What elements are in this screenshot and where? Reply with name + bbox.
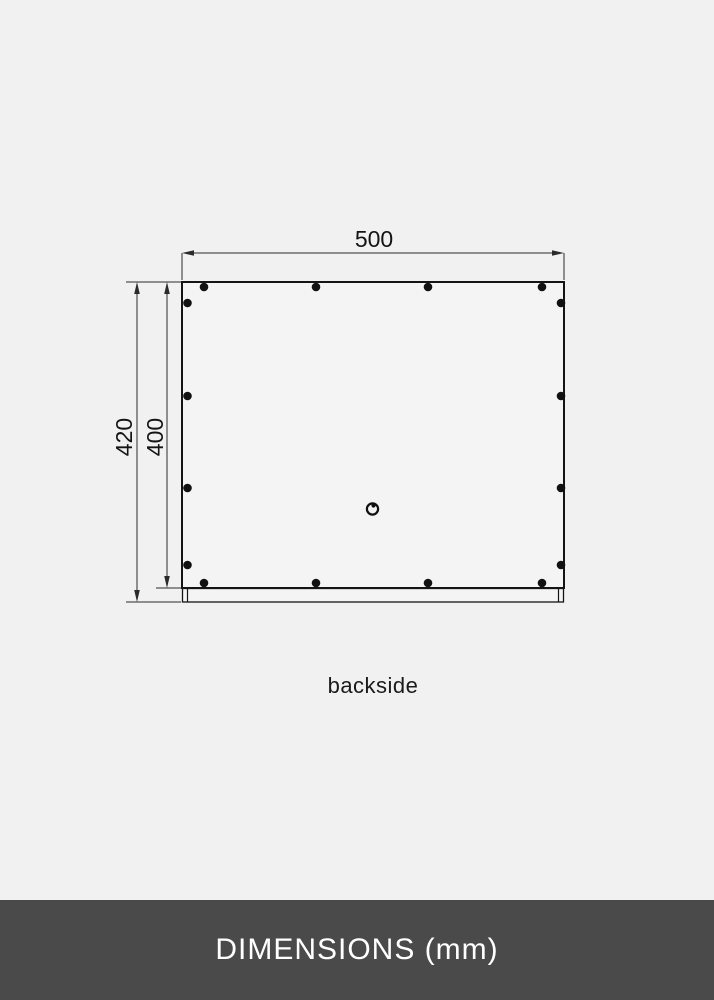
mounting-hole bbox=[424, 579, 433, 588]
mounting-hole bbox=[183, 392, 192, 401]
dimension-width bbox=[182, 250, 564, 280]
mounting-hole bbox=[557, 299, 566, 308]
dimension-diagram-page: 500 420 400 backside DIMENSIONS (mm) bbox=[0, 0, 714, 1000]
mounting-hole bbox=[183, 484, 192, 493]
arrowhead-up-icon bbox=[164, 282, 170, 294]
mounting-hole bbox=[557, 392, 566, 401]
mounting-hole bbox=[557, 561, 566, 570]
view-caption: backside bbox=[182, 673, 564, 699]
mounting-hole bbox=[538, 579, 547, 588]
mounting-hole bbox=[538, 283, 547, 292]
mounting-hole bbox=[183, 561, 192, 570]
arrowhead-up-icon bbox=[134, 282, 140, 294]
width-dimension-label: 500 bbox=[355, 226, 393, 252]
backside-diagram: 500 420 400 bbox=[0, 0, 714, 900]
mounting-hole bbox=[557, 484, 566, 493]
arrowhead-down-icon bbox=[134, 590, 140, 602]
mounting-hole bbox=[312, 579, 321, 588]
arrowhead-right-icon bbox=[552, 250, 564, 256]
footer-banner: DIMENSIONS (mm) bbox=[0, 900, 714, 1000]
hanging-rail bbox=[183, 589, 564, 603]
total-height-dimension-label: 420 bbox=[111, 418, 137, 456]
mounting-hole bbox=[424, 283, 433, 292]
arrowhead-down-icon bbox=[164, 576, 170, 588]
frame-panel bbox=[182, 282, 564, 588]
arrowhead-left-icon bbox=[182, 250, 194, 256]
mounting-hole bbox=[200, 283, 209, 292]
mounting-hole bbox=[312, 283, 321, 292]
mounting-hole bbox=[183, 299, 192, 308]
footer-title: DIMENSIONS (mm) bbox=[215, 933, 498, 967]
mounting-hole bbox=[200, 579, 209, 588]
panel-height-dimension-label: 400 bbox=[142, 418, 168, 456]
